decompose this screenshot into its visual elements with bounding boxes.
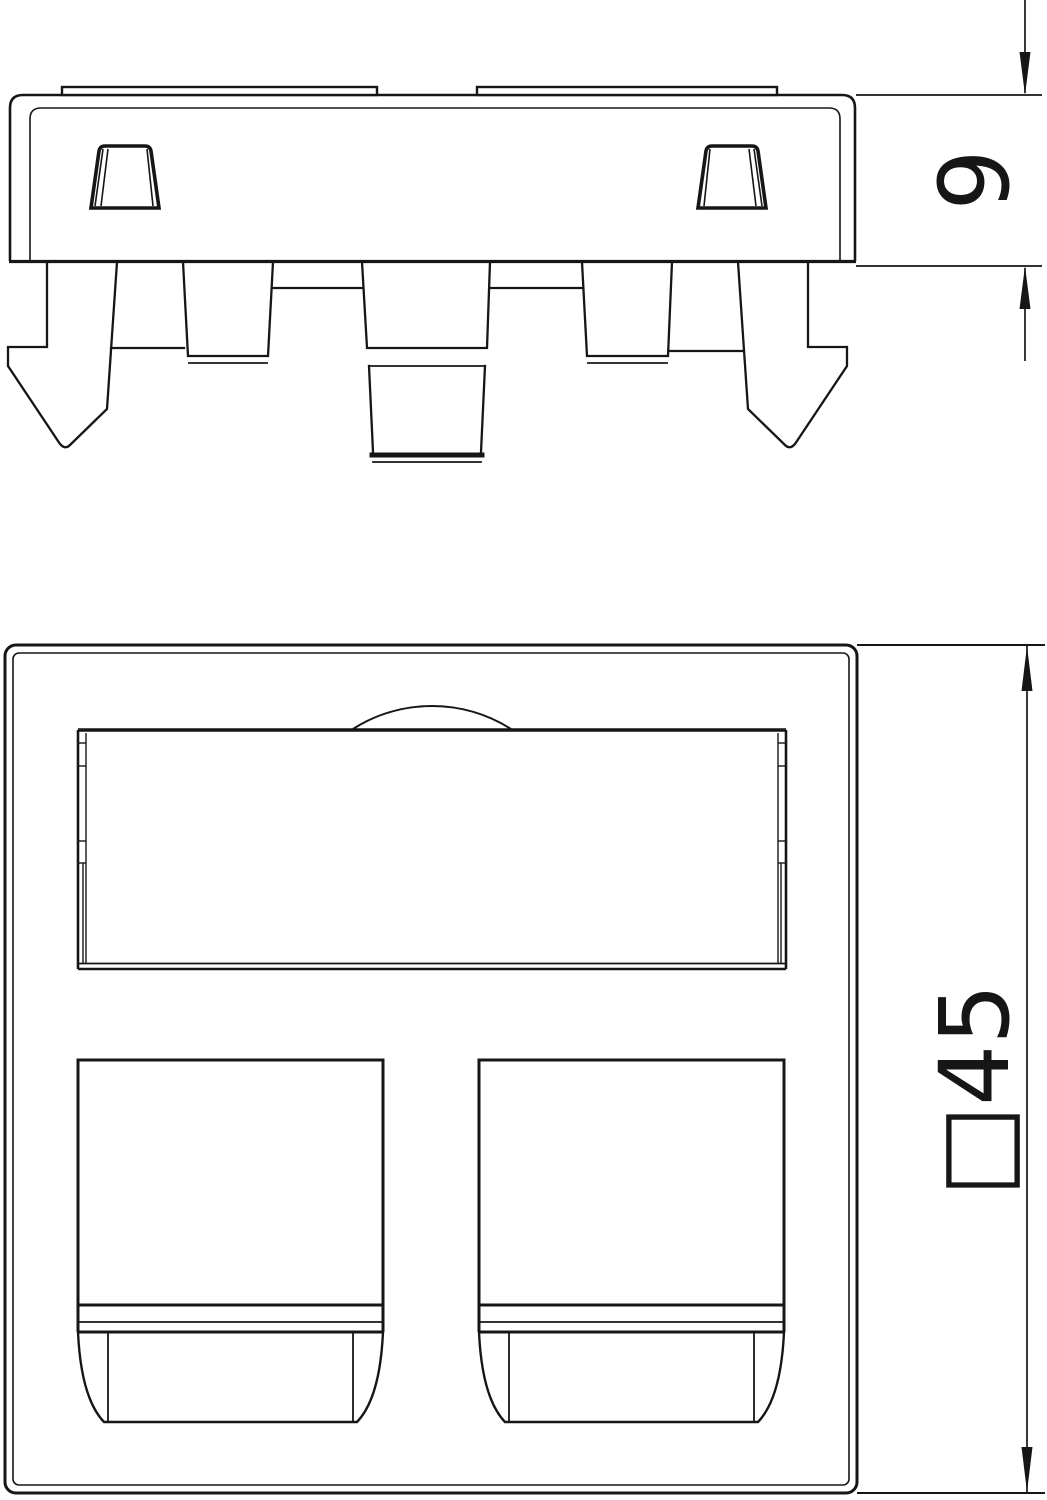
latch-left bbox=[91, 146, 159, 208]
drawing-canvas: 9 bbox=[0, 0, 1047, 1500]
jack-opening-left bbox=[78, 1060, 383, 1422]
tab-left bbox=[183, 262, 273, 363]
shutter-door bbox=[78, 1332, 383, 1422]
arrowhead-up-icon bbox=[1022, 646, 1033, 691]
claw-right bbox=[738, 262, 847, 447]
faceplate-outer-edge bbox=[5, 645, 857, 1493]
label-clip-left bbox=[78, 730, 86, 969]
top-strip-left bbox=[62, 87, 377, 95]
cover-outer-outline bbox=[10, 95, 855, 261]
depth-dimension: 9 bbox=[856, 0, 1042, 361]
faceplate-inner-edge bbox=[13, 653, 849, 1485]
tab-right bbox=[582, 262, 672, 363]
cover-body bbox=[9, 87, 856, 262]
jack-frame bbox=[78, 1060, 383, 1332]
center-foot bbox=[362, 262, 490, 462]
label-clip-right bbox=[778, 730, 786, 969]
depth-dimension-label: 9 bbox=[919, 149, 1031, 210]
faceplate-outline bbox=[5, 645, 857, 1493]
shutter-door bbox=[479, 1332, 784, 1422]
front-view: □45 bbox=[5, 645, 1045, 1493]
jack-opening-right bbox=[479, 1060, 784, 1422]
technical-drawing-sheet: 9 bbox=[0, 0, 1047, 1500]
side-view: 9 bbox=[8, 0, 1042, 462]
arrowhead-up-icon bbox=[1020, 266, 1031, 309]
jack-frame bbox=[479, 1060, 784, 1332]
top-strip-right bbox=[477, 87, 777, 95]
claw-left bbox=[8, 262, 117, 447]
arrowhead-down-icon bbox=[1022, 1447, 1033, 1492]
arrowhead-down-icon bbox=[1020, 52, 1031, 95]
latch-right bbox=[698, 146, 766, 208]
label-field bbox=[78, 706, 786, 969]
size-dimension: □45 bbox=[857, 645, 1045, 1493]
mounting-claws bbox=[8, 262, 847, 462]
finger-recess-arc bbox=[353, 706, 511, 729]
size-dimension-label: □45 bbox=[919, 984, 1031, 1197]
